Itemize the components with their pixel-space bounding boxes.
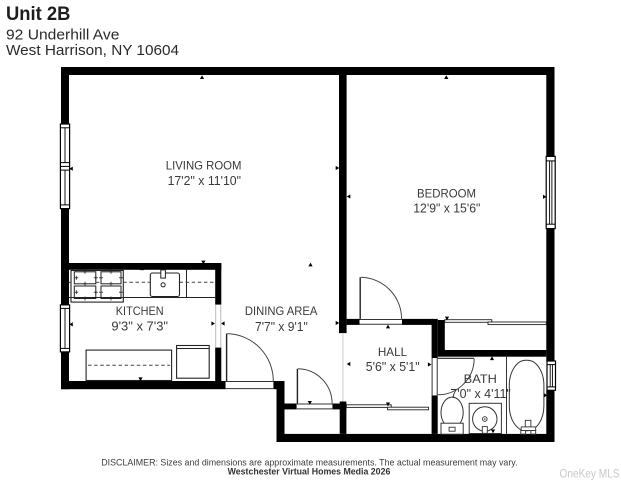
svg-text:9'3" x 7'3": 9'3" x 7'3" — [111, 320, 168, 334]
svg-text:KITCHEN: KITCHEN — [116, 304, 164, 318]
svg-text:7'7" x 9'1": 7'7" x 9'1" — [255, 320, 308, 334]
svg-text:OneKey MLS: OneKey MLS — [560, 468, 620, 480]
svg-text:7'0" x 4'11": 7'0" x 4'11" — [450, 387, 510, 401]
svg-text:12'9" x 15'6": 12'9" x 15'6" — [413, 201, 480, 215]
svg-text:5'6" x 5'1": 5'6" x 5'1" — [366, 360, 420, 374]
svg-text:HALL: HALL — [378, 345, 408, 359]
svg-text:DINING AREA: DINING AREA — [245, 304, 318, 318]
svg-text:Westchester Virtual Homes Medi: Westchester Virtual Homes Media 2026 — [228, 467, 391, 477]
svg-text:BEDROOM: BEDROOM — [417, 186, 476, 200]
svg-text:LIVING ROOM: LIVING ROOM — [166, 159, 242, 173]
svg-text:92 Underhill Ave: 92 Underhill Ave — [6, 26, 119, 43]
svg-text:West Harrison, NY 10604: West Harrison, NY 10604 — [6, 42, 179, 59]
svg-text:17'2" x 11'10": 17'2" x 11'10" — [168, 174, 241, 188]
svg-text:BATH: BATH — [464, 372, 497, 386]
svg-text:Unit 2B: Unit 2B — [6, 4, 70, 25]
